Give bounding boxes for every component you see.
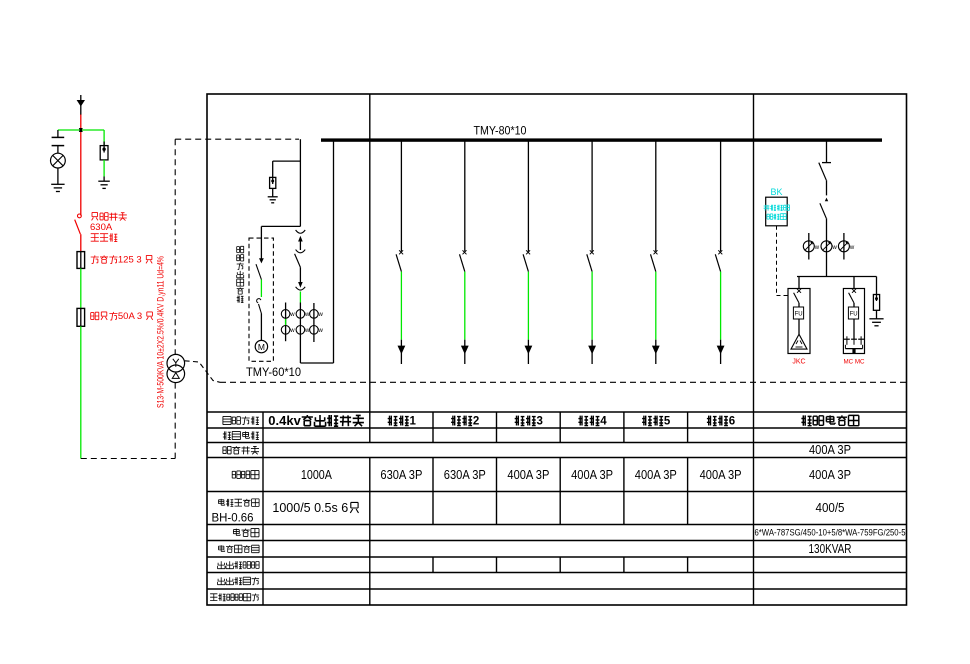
svg-text:6*WA-787SG/450-10+5/8*WA-759FG: 6*WA-787SG/450-10+5/8*WA-759FG/250-5 xyxy=(755,528,906,538)
svg-text:4: 4 xyxy=(600,415,607,427)
svg-text:w: w xyxy=(318,312,324,318)
svg-text:1000/5 0.5s 6: 1000/5 0.5s 6 xyxy=(272,501,348,515)
svg-text:5: 5 xyxy=(664,415,671,427)
svg-text:50A 3: 50A 3 xyxy=(118,311,142,322)
svg-text:BK: BK xyxy=(770,187,782,197)
svg-text:w: w xyxy=(318,328,324,334)
svg-text:MC MC: MC MC xyxy=(844,359,865,366)
svg-text:w: w xyxy=(304,312,310,318)
svg-text:w: w xyxy=(849,245,855,251)
svg-text:130KVAR: 130KVAR xyxy=(809,542,852,556)
svg-text:TMY-60*10: TMY-60*10 xyxy=(246,367,301,379)
svg-text:1000A: 1000A xyxy=(301,468,333,482)
svg-text:400A 3P: 400A 3P xyxy=(809,443,851,457)
svg-text:w: w xyxy=(832,245,838,251)
svg-text:w: w xyxy=(814,245,820,251)
svg-text:JKC: JKC xyxy=(792,359,805,366)
svg-text:FU: FU xyxy=(795,311,803,317)
svg-text:125 3: 125 3 xyxy=(118,255,142,266)
svg-text:630A 3P: 630A 3P xyxy=(380,468,422,482)
svg-text:3: 3 xyxy=(537,415,543,427)
svg-text:TMY-80*10: TMY-80*10 xyxy=(474,124,527,138)
svg-text:400A 3P: 400A 3P xyxy=(635,468,677,482)
svg-text:6: 6 xyxy=(729,415,735,427)
svg-text:0.4kv: 0.4kv xyxy=(268,413,301,428)
svg-text:w: w xyxy=(289,328,295,334)
svg-text:400A 3P: 400A 3P xyxy=(700,468,742,482)
svg-text:FU: FU xyxy=(850,311,858,317)
svg-text:1: 1 xyxy=(410,415,417,427)
svg-text:400A 3P: 400A 3P xyxy=(507,468,549,482)
svg-text:w: w xyxy=(289,312,295,318)
svg-text:400A 3P: 400A 3P xyxy=(809,468,851,482)
svg-text:S13-M-500KVA 10±2X2.5%/0.4KV D: S13-M-500KVA 10±2X2.5%/0.4KV D,yn11 Ud=4… xyxy=(156,256,167,408)
svg-text:630A 3P: 630A 3P xyxy=(444,468,486,482)
svg-text:BH-0.66: BH-0.66 xyxy=(212,513,254,525)
svg-text:400A 3P: 400A 3P xyxy=(571,468,613,482)
svg-text:w: w xyxy=(304,328,310,334)
svg-text:2: 2 xyxy=(473,415,479,427)
svg-text:400/5: 400/5 xyxy=(816,501,845,515)
svg-text:M: M xyxy=(258,342,265,352)
svg-text:630A: 630A xyxy=(90,222,113,233)
